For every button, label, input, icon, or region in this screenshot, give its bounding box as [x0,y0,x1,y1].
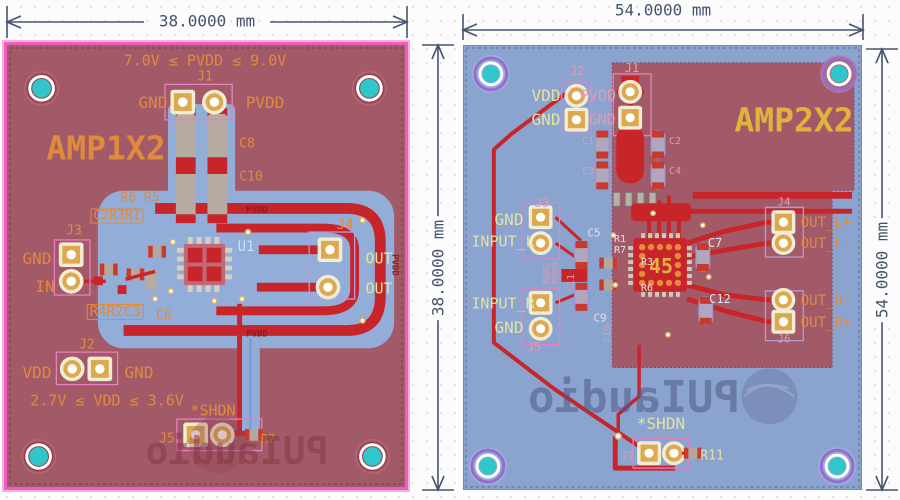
r7-resistor[interactable] [245,429,263,441]
dimension-left-width[interactable]: 38.0000 mm [4,2,410,40]
logo-mark [742,369,798,425]
amplifier-chip-45[interactable] [628,233,692,297]
dimension-left-height-label: 38.0000 mm [429,216,448,320]
left-board-copper-art [7,45,405,487]
dimension-left-height[interactable]: 38.0000 mm [420,40,456,496]
j3-connector[interactable] [529,205,553,255]
dimension-right-width-label: 54.0000 mm [615,1,711,20]
j3-connector[interactable] [59,242,84,293]
dimension-right-width[interactable]: 54.0000 mm [459,0,867,42]
j5-connector[interactable] [529,291,553,341]
right-board-copper-art [464,46,861,489]
j2-connector[interactable] [564,84,588,132]
right-board[interactable]: J2VDDGNDPVDDGNDJ1C1C2C3C4AMP2X2J3GNDINPU… [463,45,862,490]
shdn-trace[interactable] [237,304,242,432]
j7-connector[interactable] [637,441,686,465]
j4-connector[interactable] [771,210,795,255]
dimension-left-width-label: 38.0000 mm [159,12,255,31]
left-board[interactable]: 7.0V ≤ PVDD ≤ 9.0VJ1GNDPVDDC8C10AMP1X2R6… [4,42,408,490]
dimension-right-height[interactable]: 54.0000 mm [864,44,900,496]
j2-connector[interactable] [60,357,112,382]
logo-mark [189,416,246,473]
u1-amplifier-chip[interactable] [177,237,232,292]
pcb-layout-canvas[interactable]: 38.0000 mm 38.0000 mm 54.0000 mm 54.0000… [0,0,900,500]
dimension-right-height-label: 54.0000 mm [873,218,892,322]
r11-resistor[interactable] [682,448,702,459]
j6-connector[interactable] [771,288,795,334]
